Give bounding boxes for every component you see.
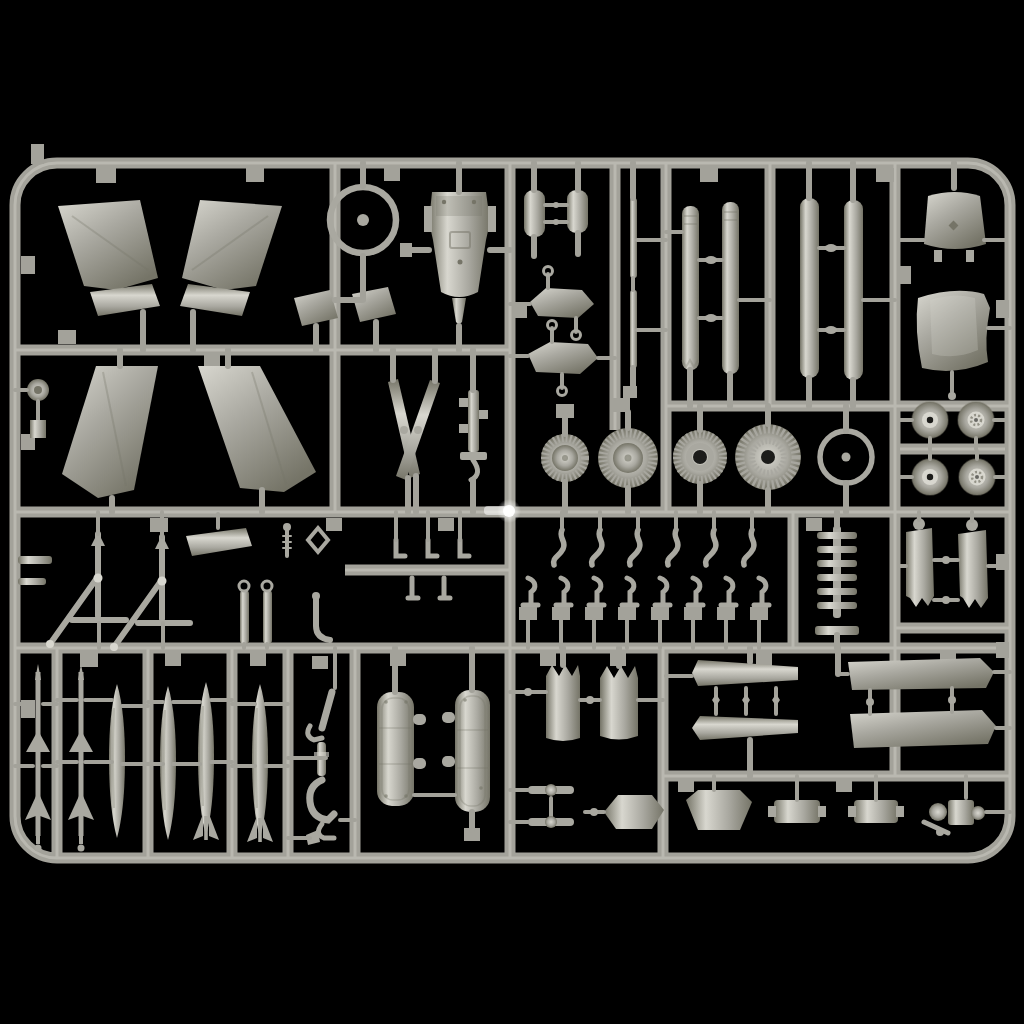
afterburner-ring-2 bbox=[580, 648, 663, 740]
stabilator-half-pair bbox=[666, 648, 798, 776]
gear-retraction-strut-1 bbox=[46, 512, 126, 648]
intake-duct-2 bbox=[699, 202, 770, 406]
engine-fan-disc-4 bbox=[735, 406, 801, 512]
hinge-plate-2 bbox=[510, 321, 615, 396]
road-wheel-4 bbox=[959, 459, 995, 495]
intake-ramp-2 bbox=[934, 512, 1005, 608]
spoked-rim-wheel-2 bbox=[820, 406, 872, 512]
gear-bay-door-1 bbox=[377, 648, 426, 806]
missile-1 bbox=[25, 664, 51, 852]
gear-retraction-strut-2 bbox=[110, 512, 190, 651]
main-wing-right bbox=[198, 350, 316, 512]
link-dumbbell-2 bbox=[510, 816, 574, 828]
intake-duct-3 bbox=[800, 163, 819, 406]
intake-ramp-1 bbox=[900, 512, 934, 607]
trim-vane bbox=[186, 514, 252, 556]
cockpit-tub bbox=[400, 163, 510, 350]
strake-plate-hex bbox=[686, 776, 752, 830]
gear-bay-door-2 bbox=[414, 648, 490, 830]
road-wheel-2 bbox=[958, 402, 994, 438]
glare-spot bbox=[484, 499, 521, 523]
instrument-panel-pair bbox=[524, 163, 588, 256]
sprue-photo bbox=[0, 0, 1024, 1024]
vent-grille bbox=[815, 512, 859, 648]
road-wheel-1 bbox=[912, 402, 948, 438]
access-panel-2 bbox=[352, 287, 396, 350]
equipment-bracket bbox=[459, 350, 488, 512]
horizontal-stabilizer-right bbox=[180, 200, 282, 350]
small-lever-cluster bbox=[396, 512, 469, 598]
main-wing-left bbox=[62, 350, 158, 512]
actuator-screw bbox=[283, 523, 291, 556]
s-hook-levers bbox=[554, 512, 754, 565]
link-dumbbell-1 bbox=[510, 784, 574, 818]
clevis-ring bbox=[308, 528, 328, 552]
hex-access-plate-1 bbox=[585, 795, 664, 829]
finned-bomb-2 bbox=[247, 684, 273, 842]
missile-2 bbox=[68, 664, 94, 852]
engine-fan-disc-2 bbox=[598, 412, 658, 512]
engine-fan-disc-3 bbox=[673, 406, 727, 512]
door-hinge-hook bbox=[312, 592, 330, 640]
road-wheel-3 bbox=[912, 459, 948, 495]
frame-bars bbox=[18, 556, 52, 585]
antenna-blade-pair bbox=[388, 350, 440, 512]
strake-plate-2 bbox=[848, 776, 904, 823]
windscreen-frame bbox=[900, 163, 1005, 262]
horizontal-stabilizer-left bbox=[58, 200, 160, 350]
strake-plate-1 bbox=[768, 776, 826, 823]
l-post-levers bbox=[519, 578, 769, 648]
engine-fan-disc-1 bbox=[541, 416, 589, 512]
flap-panel-pair bbox=[838, 648, 1010, 748]
main-gear-leg bbox=[288, 648, 355, 845]
pump-assembly bbox=[924, 776, 1010, 836]
intake-duct-4 bbox=[819, 163, 895, 406]
stabilizer-flap-left bbox=[90, 284, 160, 316]
gear-link-pair bbox=[239, 581, 272, 648]
